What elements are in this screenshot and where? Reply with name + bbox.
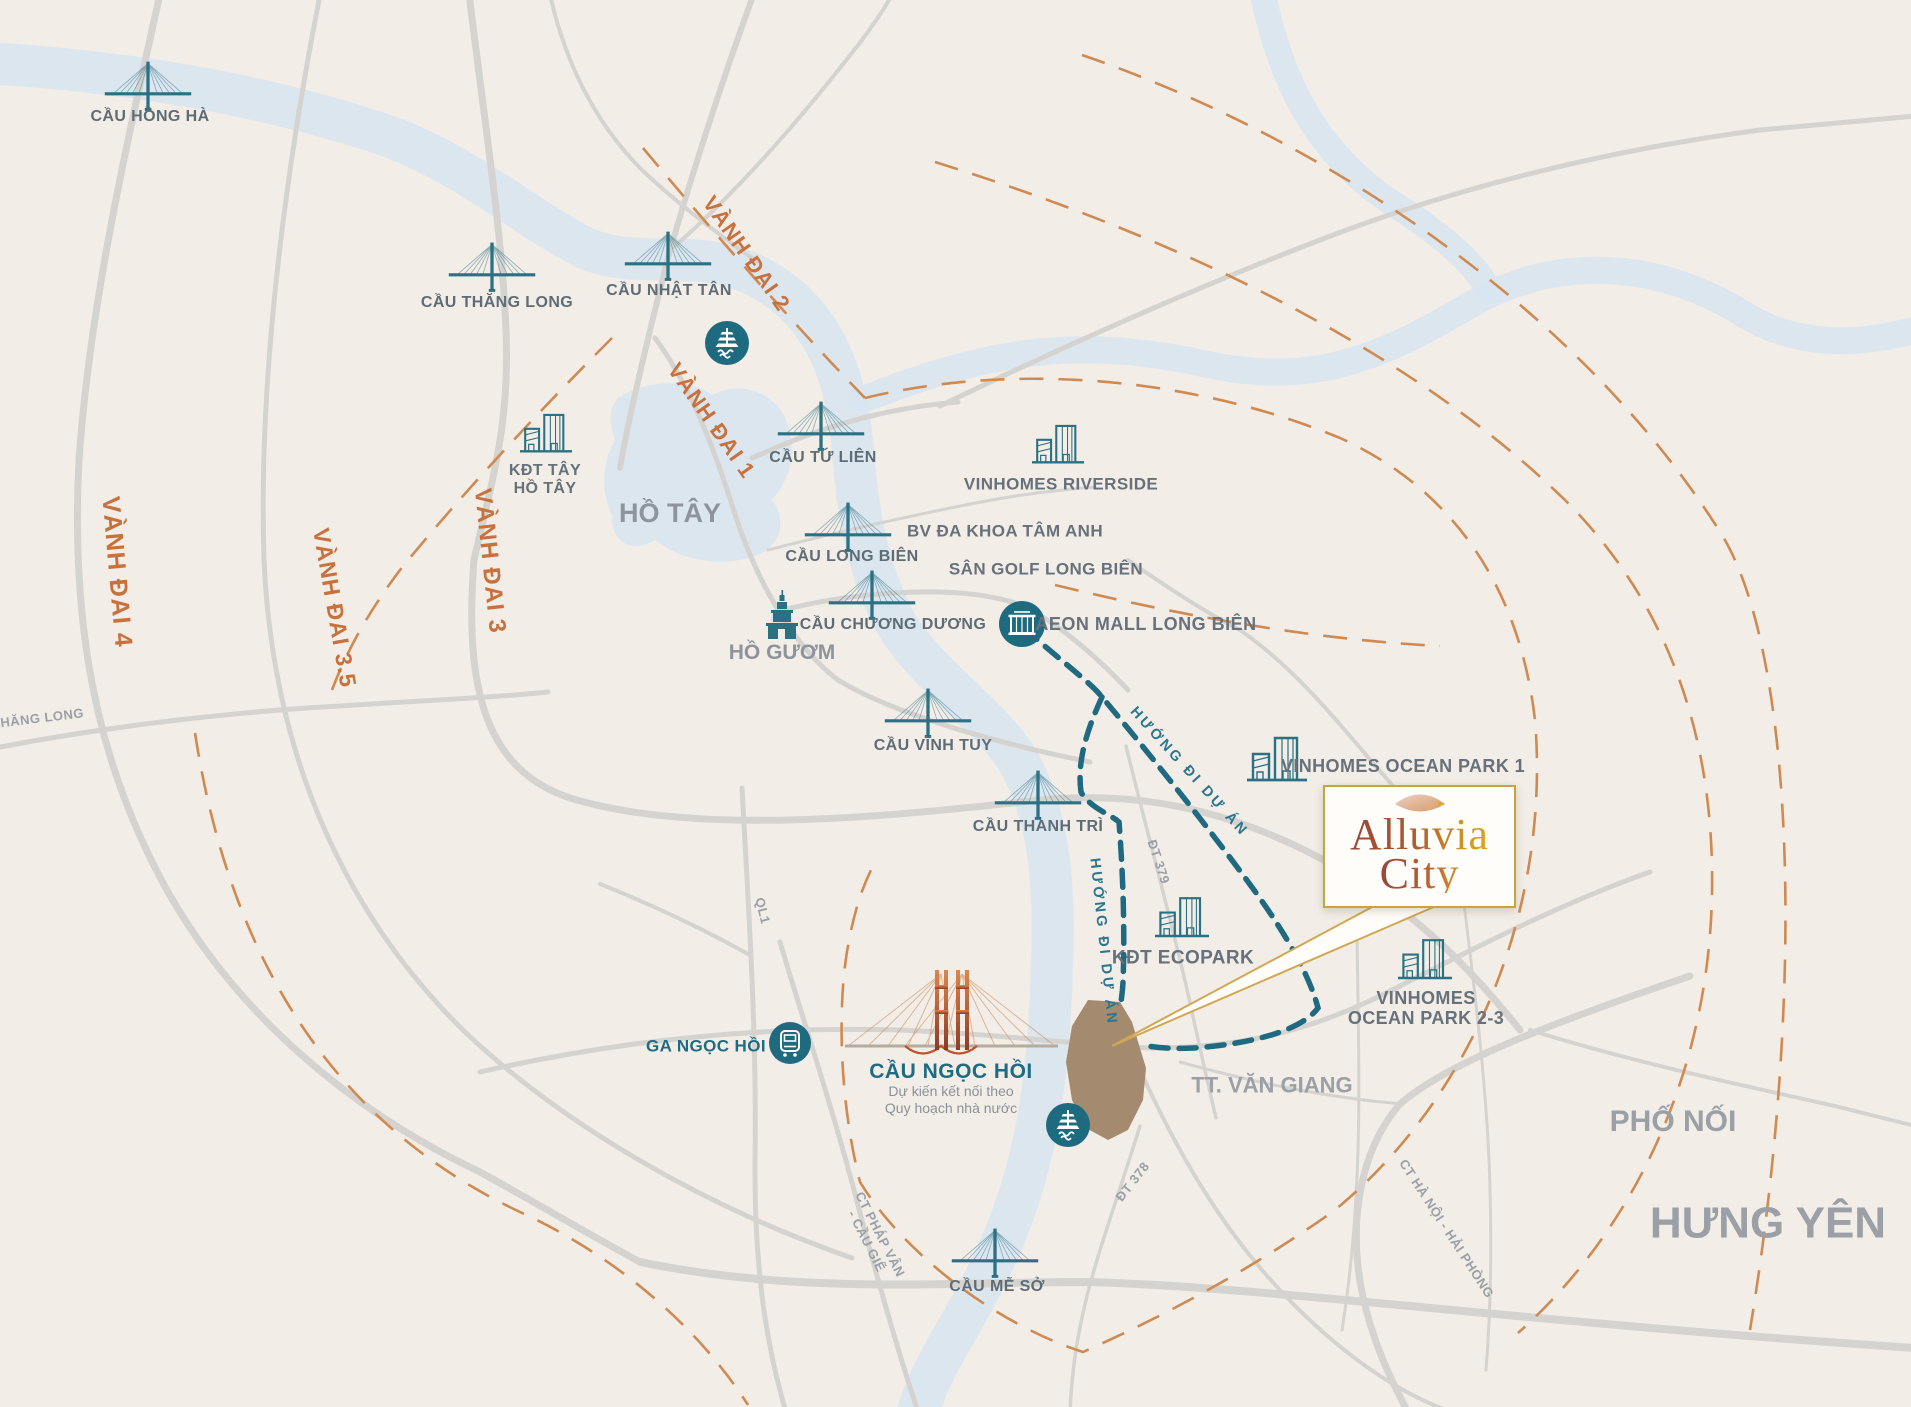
buildings-icon-kdt-ecopark — [1155, 898, 1209, 936]
label-cau-thanh-tri: CẦU THANH TRÌ — [973, 818, 1104, 836]
buildings-icon-kdt-tay-ho-tay — [520, 415, 572, 451]
label-cau-nhat-tan: CẦU NHẬT TÂN — [606, 282, 732, 300]
label-cau-vinh-tuy: CẦU VĨNH TUY — [874, 737, 993, 755]
kdt-tay-line-2: HỒ TÂY — [509, 480, 581, 498]
label-bv-tam-anh: BV ĐA KHOA TÂM ANH — [907, 521, 1103, 540]
train-station-icon — [769, 1022, 811, 1064]
label-cau-ngoc-hoi: CẦU NGỌC HỒI — [869, 1060, 1033, 1084]
label-kdt-ecopark: KĐT ECOPARK — [1112, 947, 1254, 968]
map-canvas — [0, 0, 1911, 1407]
label-ga-ngoc-hoi: GA NGỌC HỒI — [646, 1036, 766, 1055]
project-card-alluvia-city: Alluvia City — [1323, 785, 1516, 908]
bridge-icon-thang-long — [449, 243, 535, 291]
brand-name-line-2: City — [1380, 855, 1460, 894]
label-vinhomes-ocean-park-2-3: VINHOMES OCEAN PARK 2-3 — [1348, 988, 1504, 1028]
op23-line-1: VINHOMES — [1348, 988, 1504, 1008]
label-cau-long-bien: CẦU LONG BIÊN — [785, 548, 918, 566]
label-ho-tay: HỒ TÂY — [619, 498, 721, 528]
label-cau-hong-ha: CẦU HỒNG HÀ — [90, 108, 209, 126]
pagoda-icon-south — [1046, 1103, 1090, 1147]
label-cau-me-so: CẦU MỄ SỞ — [949, 1278, 1044, 1296]
label-cau-tu-lien: CẦU TỨ LIÊN — [769, 449, 876, 467]
buildings-icon-vinhomes-riverside — [1032, 426, 1084, 462]
note-line-2: Quy hoạch nhà nước — [885, 1100, 1017, 1117]
pagoda-icon-north — [705, 321, 749, 365]
location-map: CẦU HỒNG HÀ CẦU THĂNG LONG CẦU NHẬT TÂN … — [0, 0, 1911, 1407]
note-line-1: Dự kiến kết nối theo — [885, 1083, 1017, 1100]
label-cau-thang-long: CẦU THĂNG LONG — [421, 294, 573, 312]
label-pho-noi: PHỐ NỐI — [1610, 1105, 1737, 1139]
label-cau-chuong-duong: CẦU CHƯƠNG DƯƠNG — [800, 616, 986, 634]
label-kdt-tay-ho-tay: KĐT TÂY HỒ TÂY — [509, 462, 581, 498]
label-vinhomes-ocean-park-1: VINHOMES OCEAN PARK 1 — [1281, 756, 1525, 776]
label-vinhomes-riverside: VINHOMES RIVERSIDE — [964, 474, 1158, 493]
label-aeon-mall: AEON MALL LONG BIÊN — [1035, 614, 1256, 634]
label-san-golf-long-bien: SÂN GOLF LONG BIÊN — [949, 559, 1143, 578]
op23-line-2: OCEAN PARK 2-3 — [1348, 1008, 1504, 1028]
label-cau-ngoc-hoi-note: Dự kiến kết nối theo Quy hoạch nhà nước — [885, 1083, 1017, 1117]
kdt-tay-line-1: KĐT TÂY — [509, 462, 581, 480]
label-hung-yen: HƯNG YÊN — [1650, 1198, 1886, 1247]
duong-river — [862, 270, 1911, 400]
label-tt-van-giang: TT. VĂN GIANG — [1191, 1074, 1352, 1099]
red-river — [0, 62, 1053, 1407]
label-ho-guom: HỒ GƯƠM — [729, 641, 836, 665]
